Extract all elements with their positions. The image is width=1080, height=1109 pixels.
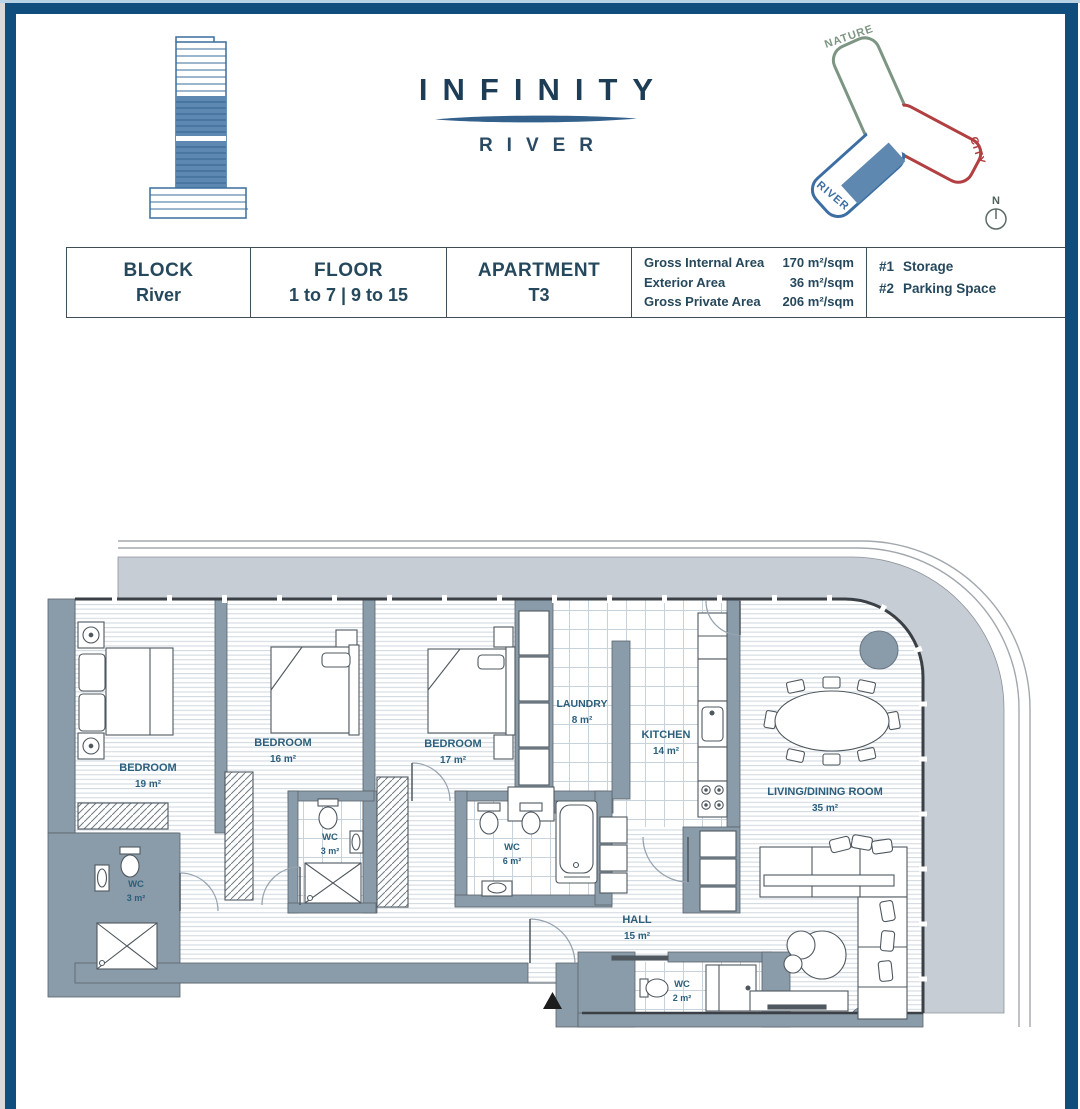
room-label: BEDROOM (424, 738, 481, 750)
room-area: 19 m² (135, 779, 162, 790)
area-label: Gross Private Area (644, 292, 761, 312)
brand-logo: INFINITY RIVER (340, 72, 732, 157)
column (860, 631, 898, 669)
room-area: 3 m² (127, 893, 146, 903)
room-label: WC (322, 832, 338, 843)
room-area: 8 m² (572, 715, 593, 726)
areas-cell: Gross Internal Area170 m²/sqm Exterior A… (631, 248, 866, 317)
room-area: 17 m² (440, 755, 467, 766)
floor-value: 1 to 7 | 9 to 15 (289, 285, 408, 306)
stove-icon (698, 781, 727, 817)
swoosh-icon (431, 115, 641, 124)
room-area: 35 m² (812, 803, 839, 814)
room-label: LIVING/DINING ROOM (767, 786, 883, 798)
plants (784, 931, 846, 979)
extra-label: Storage (903, 259, 953, 274)
room-label: WC (128, 879, 144, 890)
site-plan-diagram: NATURE CITY RIVER N (792, 12, 1030, 250)
wardrobe-bedroom1 (78, 803, 168, 829)
floor-label: FLOOR (314, 260, 383, 282)
brand-subtitle: RIVER (340, 135, 732, 157)
extra-row: #1Storage (879, 256, 1053, 278)
area-row: Gross Internal Area170 m²/sqm (644, 253, 854, 273)
room-label: KITCHEN (642, 729, 691, 741)
area-label: Gross Internal Area (644, 253, 764, 273)
room-label: WC (504, 842, 520, 853)
compass-icon: N (986, 195, 1006, 229)
room-label: BEDROOM (254, 737, 311, 749)
room-area: 3 m² (321, 846, 340, 856)
room-area: 6 m² (503, 856, 522, 866)
floor-cell: FLOOR 1 to 7 | 9 to 15 (250, 248, 446, 317)
brochure-page: { "page": { "frame_color": "#0f4e7c", "a… (0, 0, 1080, 1109)
tower-icon (148, 36, 248, 226)
room-area: 15 m² (624, 931, 651, 942)
block-label: BLOCK (123, 260, 193, 282)
block-cell: BLOCK River (66, 248, 250, 317)
apartment-cell: APARTMENT T3 (446, 248, 631, 317)
area-value: 206 m²/sqm (782, 292, 854, 312)
area-value: 170 m²/sqm (782, 253, 854, 273)
tv-console (750, 991, 848, 1011)
kitchen-counter (698, 613, 727, 817)
extras-cell: #1Storage #2Parking Space (866, 248, 1065, 317)
brand-title: INFINITY (340, 72, 732, 108)
extra-row: #2Parking Space (879, 278, 1053, 300)
extra-num: #1 (879, 256, 894, 278)
area-label: Exterior Area (644, 273, 725, 293)
floor-plan: BEDROOM 19 m² BEDROOM 16 m² BEDROOM 17 m… (0, 535, 1080, 1109)
room-area: 14 m² (653, 746, 680, 757)
wardrobe-bedroom2 (225, 772, 253, 900)
room-label: HALL (622, 914, 652, 926)
area-row: Exterior Area36 m²/sqm (644, 273, 854, 293)
room-label: WC (674, 979, 690, 990)
extra-num: #2 (879, 278, 894, 300)
area-row: Gross Private Area206 m²/sqm (644, 292, 854, 312)
area-value: 36 m²/sqm (790, 273, 854, 293)
extra-label: Parking Space (903, 281, 996, 296)
info-table: BLOCK River FLOOR 1 to 7 | 9 to 15 APART… (66, 247, 1065, 318)
room-area: 16 m² (270, 754, 297, 765)
apartment-label: APARTMENT (478, 260, 600, 282)
wardrobe-bedroom3 (377, 777, 408, 907)
room-label: BEDROOM (119, 762, 176, 774)
compass-n-label: N (992, 195, 1000, 207)
room-label: LAUNDRY (557, 698, 608, 710)
room-area: 2 m² (673, 993, 692, 1003)
apartment-value: T3 (528, 285, 549, 306)
block-value: River (136, 285, 181, 306)
